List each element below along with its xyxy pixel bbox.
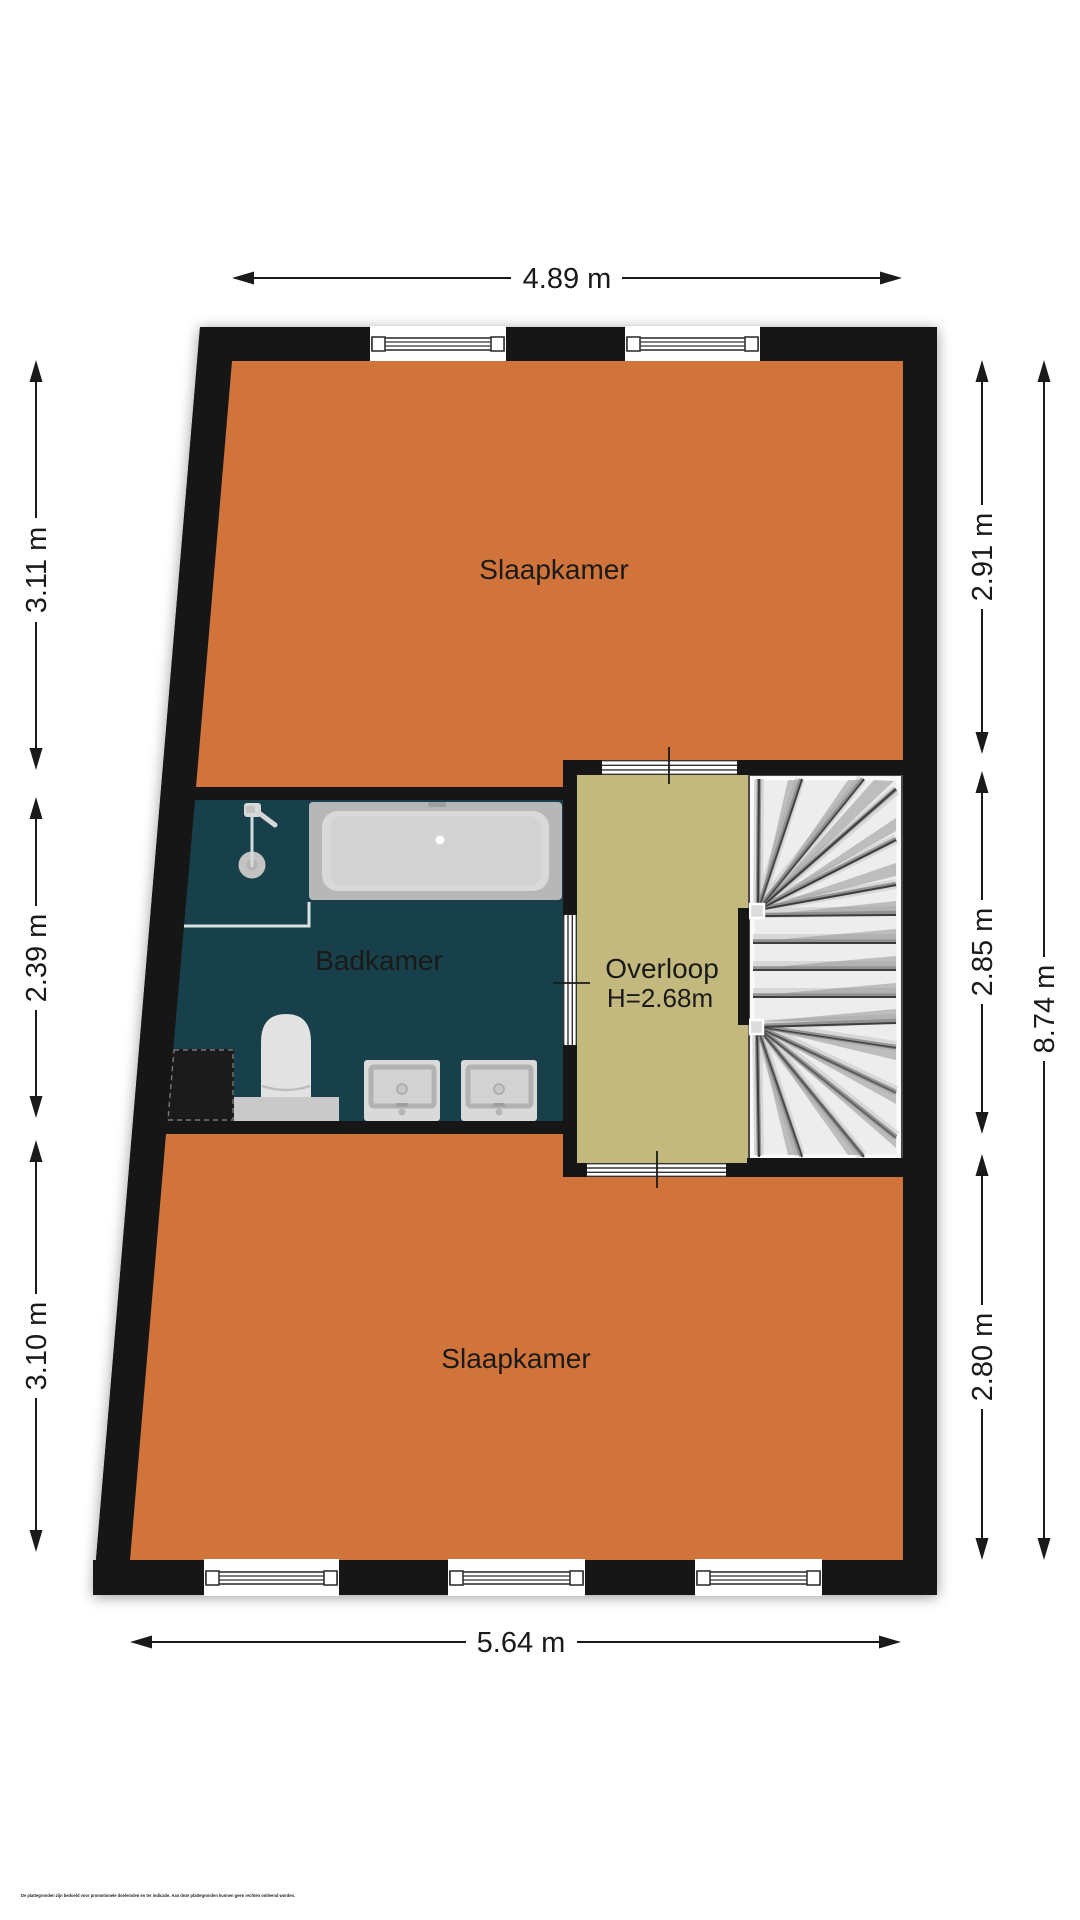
svg-text:Badkamer: Badkamer — [315, 945, 443, 976]
svg-text:8.74 m: 8.74 m — [1029, 965, 1061, 1054]
svg-text:3.11 m: 3.11 m — [21, 527, 53, 614]
svg-text:2.80 m: 2.80 m — [967, 1313, 999, 1402]
svg-text:Slaapkamer: Slaapkamer — [441, 1343, 590, 1374]
svg-text:2.85 m: 2.85 m — [967, 908, 999, 997]
svg-text:5.64 m: 5.64 m — [477, 1627, 566, 1659]
svg-text:H=2.68m: H=2.68m — [607, 983, 713, 1013]
svg-text:Overloop: Overloop — [605, 953, 719, 984]
svg-text:2.91 m: 2.91 m — [967, 513, 999, 602]
svg-text:De plattegronden zijn bedoeld: De plattegronden zijn bedoeld voor promo… — [21, 1893, 295, 1898]
svg-text:2.39 m: 2.39 m — [21, 914, 53, 1003]
svg-text:3.10 m: 3.10 m — [21, 1302, 53, 1391]
svg-text:Slaapkamer: Slaapkamer — [479, 554, 628, 585]
svg-text:4.89 m: 4.89 m — [523, 263, 612, 295]
